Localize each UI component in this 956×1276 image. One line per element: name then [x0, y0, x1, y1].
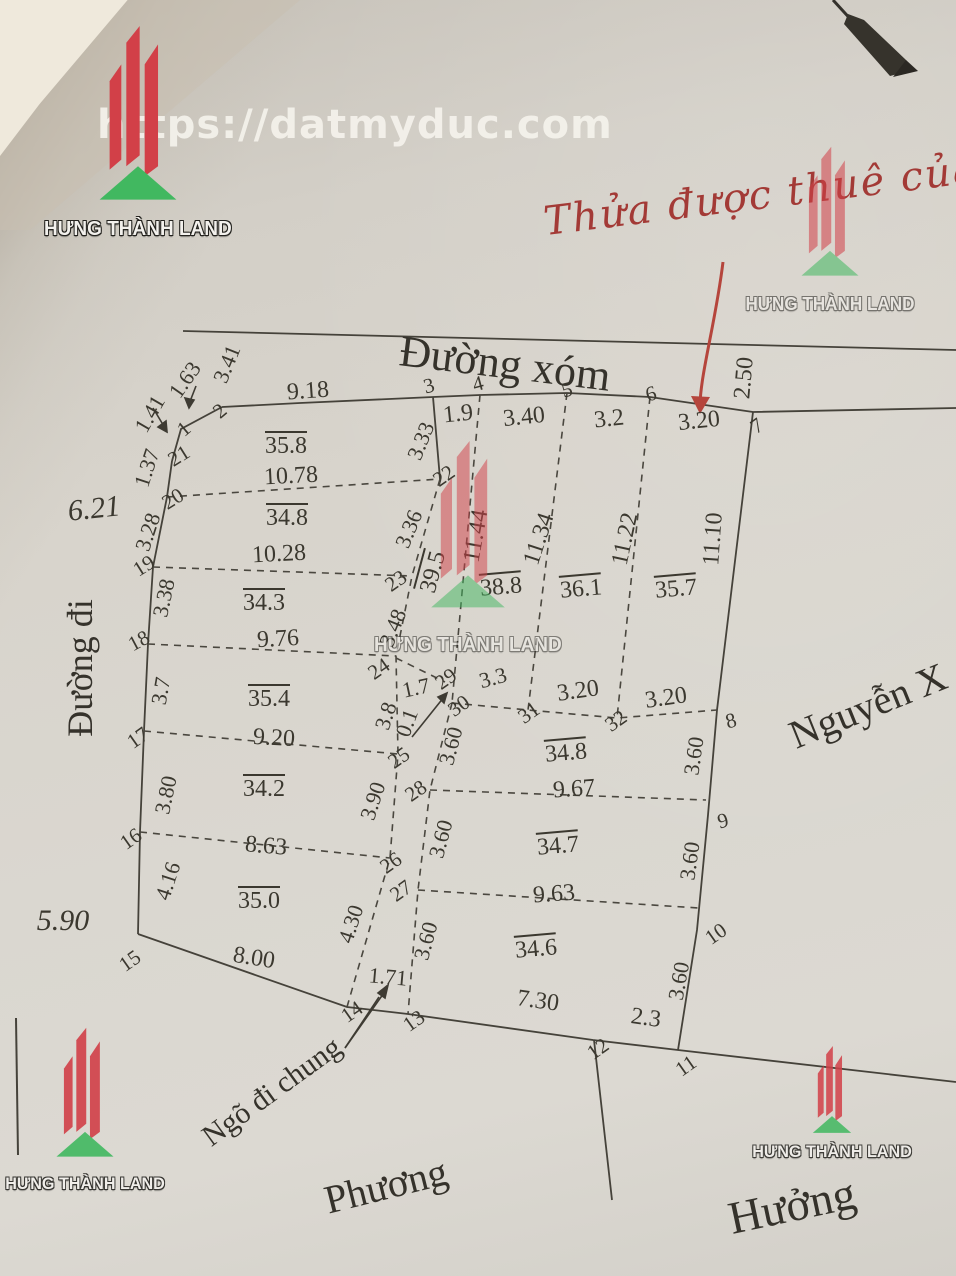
photographed-land-plot-sketch: https://datmyduc.com Đường xómĐường điNg…: [0, 0, 956, 1276]
dimension-label: 10.78: [263, 463, 318, 490]
hung-thanh-land-logo-text: HƯNG THÀNH LAND: [374, 634, 562, 657]
dimension-label: 3.40: [502, 403, 546, 431]
segment-length-label: 2.50: [730, 356, 758, 400]
dimension-label: 9.20: [252, 725, 295, 751]
brand-logo-bottom-right: HƯNG THÀNH LAND: [766, 1046, 898, 1162]
east-boundary: [678, 412, 753, 1050]
divider-row2: [153, 567, 412, 576]
dimension-label: 1.71: [368, 964, 408, 989]
hung-thanh-land-logo-text: HƯNG THÀNH LAND: [5, 1174, 165, 1194]
dimension-label: 3.20: [677, 407, 721, 435]
plot-area-label: 35.0: [238, 889, 280, 913]
red-arrow-shaft: [700, 262, 723, 404]
arrowhead-141: [158, 421, 167, 432]
road-width-label: 6.21: [66, 491, 121, 526]
arrowhead-163: [185, 398, 194, 408]
south-spur-line: [594, 1040, 612, 1200]
dimension-label: 9.67: [552, 776, 596, 803]
red-annotation-arrow: [691, 262, 723, 414]
plot-area-label: 34.2: [243, 777, 285, 801]
hung-thanh-land-logo-text: HƯNG THÀNH LAND: [745, 294, 914, 315]
dimension-label: 9.18: [286, 378, 330, 405]
plot-area-label: 34.6: [514, 935, 558, 963]
hung-thanh-land-logo-text: HƯNG THÀNH LAND: [752, 1142, 912, 1162]
brand-logo-center: HƯNG THÀNH LAND: [386, 432, 550, 657]
segment-length-label: 3.60: [676, 840, 703, 881]
pen-object: [833, 0, 918, 77]
hung-thanh-land-logo-text: HƯNG THÀNH LAND: [44, 218, 232, 241]
hung-thanh-land-logo-icon: [94, 26, 182, 218]
plot-area-label: 35.4: [248, 687, 290, 711]
dimension-label: 3.20: [644, 683, 689, 713]
plot-area-label: 34.8: [544, 739, 588, 767]
plot-area-label: 34.3: [243, 591, 285, 615]
hung-thanh-land-logo-icon: [54, 1024, 116, 1174]
brand-logo-upper-right: HƯNG THÀNH LAND: [755, 142, 905, 315]
hung-thanh-land-logo-icon: [804, 1046, 860, 1142]
dimension-label: 9.63: [532, 881, 576, 908]
plot-area-label: 36.1: [559, 575, 603, 603]
brand-logo-bottom-left: HƯNG THÀNH LAND: [20, 1024, 150, 1194]
dimension-label: 10.28: [251, 541, 306, 568]
dimension-label: 3.20: [556, 676, 601, 706]
dimension-label: 7.30: [516, 986, 561, 1016]
street-duong-di: Đường đi: [62, 599, 98, 737]
segment-length-label: 3.60: [680, 735, 707, 776]
dimension-label: 9.76: [256, 626, 299, 652]
hung-thanh-land-logo-icon: [799, 142, 861, 294]
dimension-label: 1.7: [400, 674, 431, 701]
plot-area-label: 34.8: [266, 506, 308, 530]
plot-area-label: 35.7: [654, 575, 698, 603]
dimension-label: 8.63: [244, 832, 288, 860]
dimension-label: 8.00: [231, 943, 276, 973]
plot-area-label: 34.7: [536, 832, 580, 860]
hung-thanh-land-logo-icon: [428, 432, 508, 634]
segment-length-label: 11.10: [699, 512, 727, 567]
segment-length-label: 3.7: [148, 676, 174, 707]
dimension-label: 1.9: [442, 400, 474, 427]
dimension-label: 3.2: [593, 405, 625, 432]
brand-logo-top-left: HƯNG THÀNH LAND: [58, 26, 218, 241]
page-edge-line: [16, 1018, 18, 1155]
plot-area-label: 35.8: [265, 434, 307, 458]
road-width-label: 5.90: [37, 906, 90, 936]
dimension-label: 2.3: [629, 1004, 662, 1032]
